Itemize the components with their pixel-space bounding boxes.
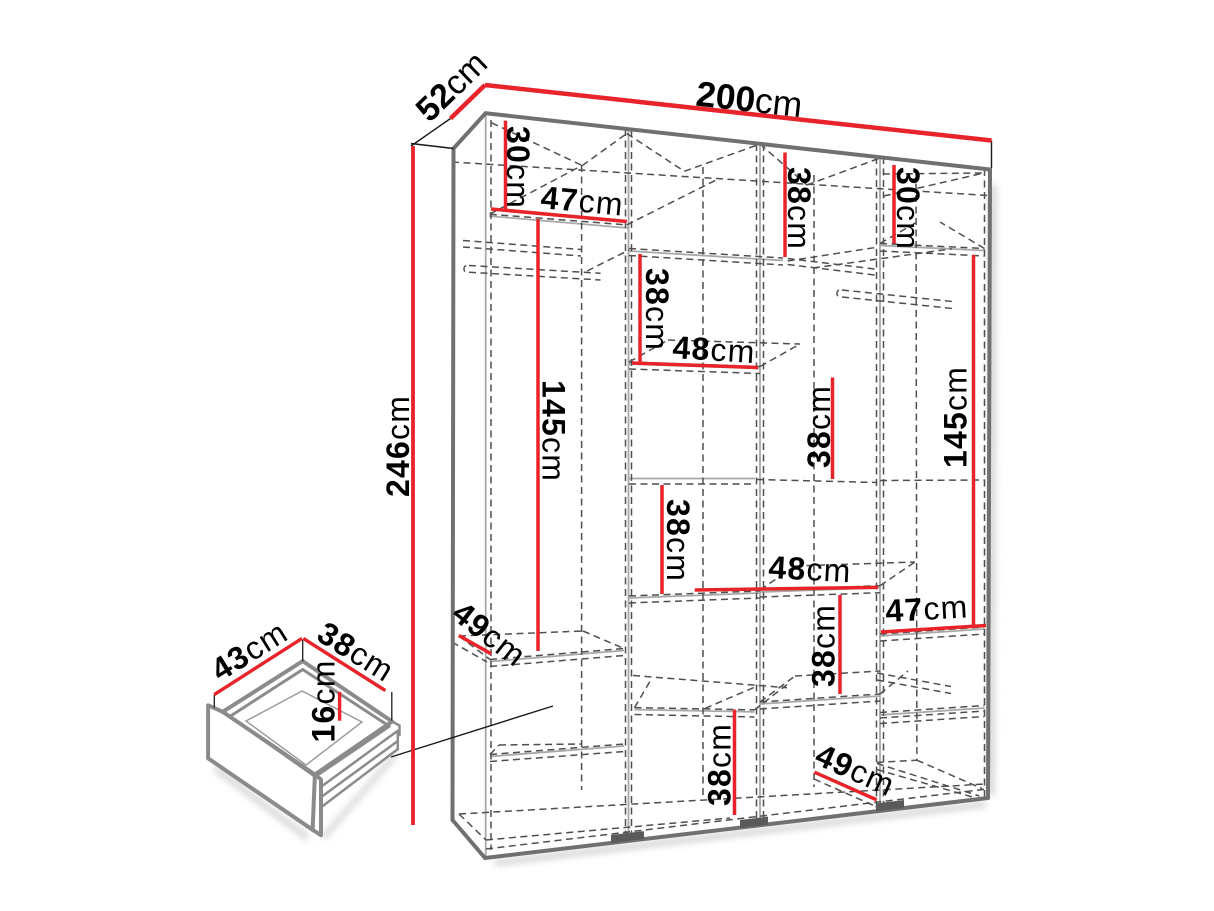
svg-text:16cm: 16cm (306, 659, 342, 742)
svg-text:47cm: 47cm (539, 179, 625, 223)
svg-text:38cm: 38cm (781, 167, 817, 250)
svg-text:38cm: 38cm (801, 385, 837, 468)
svg-text:38cm: 38cm (639, 268, 675, 351)
svg-text:38cm: 38cm (702, 723, 738, 806)
svg-text:246cm: 246cm (380, 395, 416, 497)
svg-text:48cm: 48cm (672, 329, 757, 370)
svg-text:38cm: 38cm (660, 499, 696, 582)
svg-text:145cm: 145cm (938, 366, 974, 468)
svg-text:38cm: 38cm (806, 604, 842, 687)
svg-text:30cm: 30cm (500, 126, 536, 209)
svg-text:30cm: 30cm (890, 167, 926, 250)
svg-text:145cm: 145cm (536, 380, 572, 482)
svg-text:48cm: 48cm (768, 549, 853, 589)
svg-text:47cm: 47cm (884, 588, 969, 629)
